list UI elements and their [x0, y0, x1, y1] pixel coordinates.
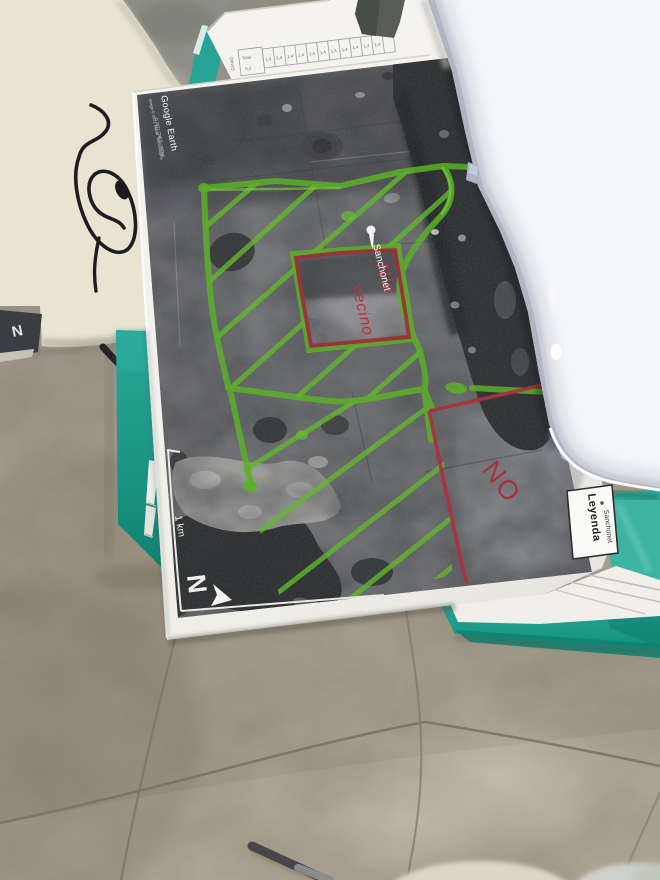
svg-text:N: N: [181, 573, 213, 595]
